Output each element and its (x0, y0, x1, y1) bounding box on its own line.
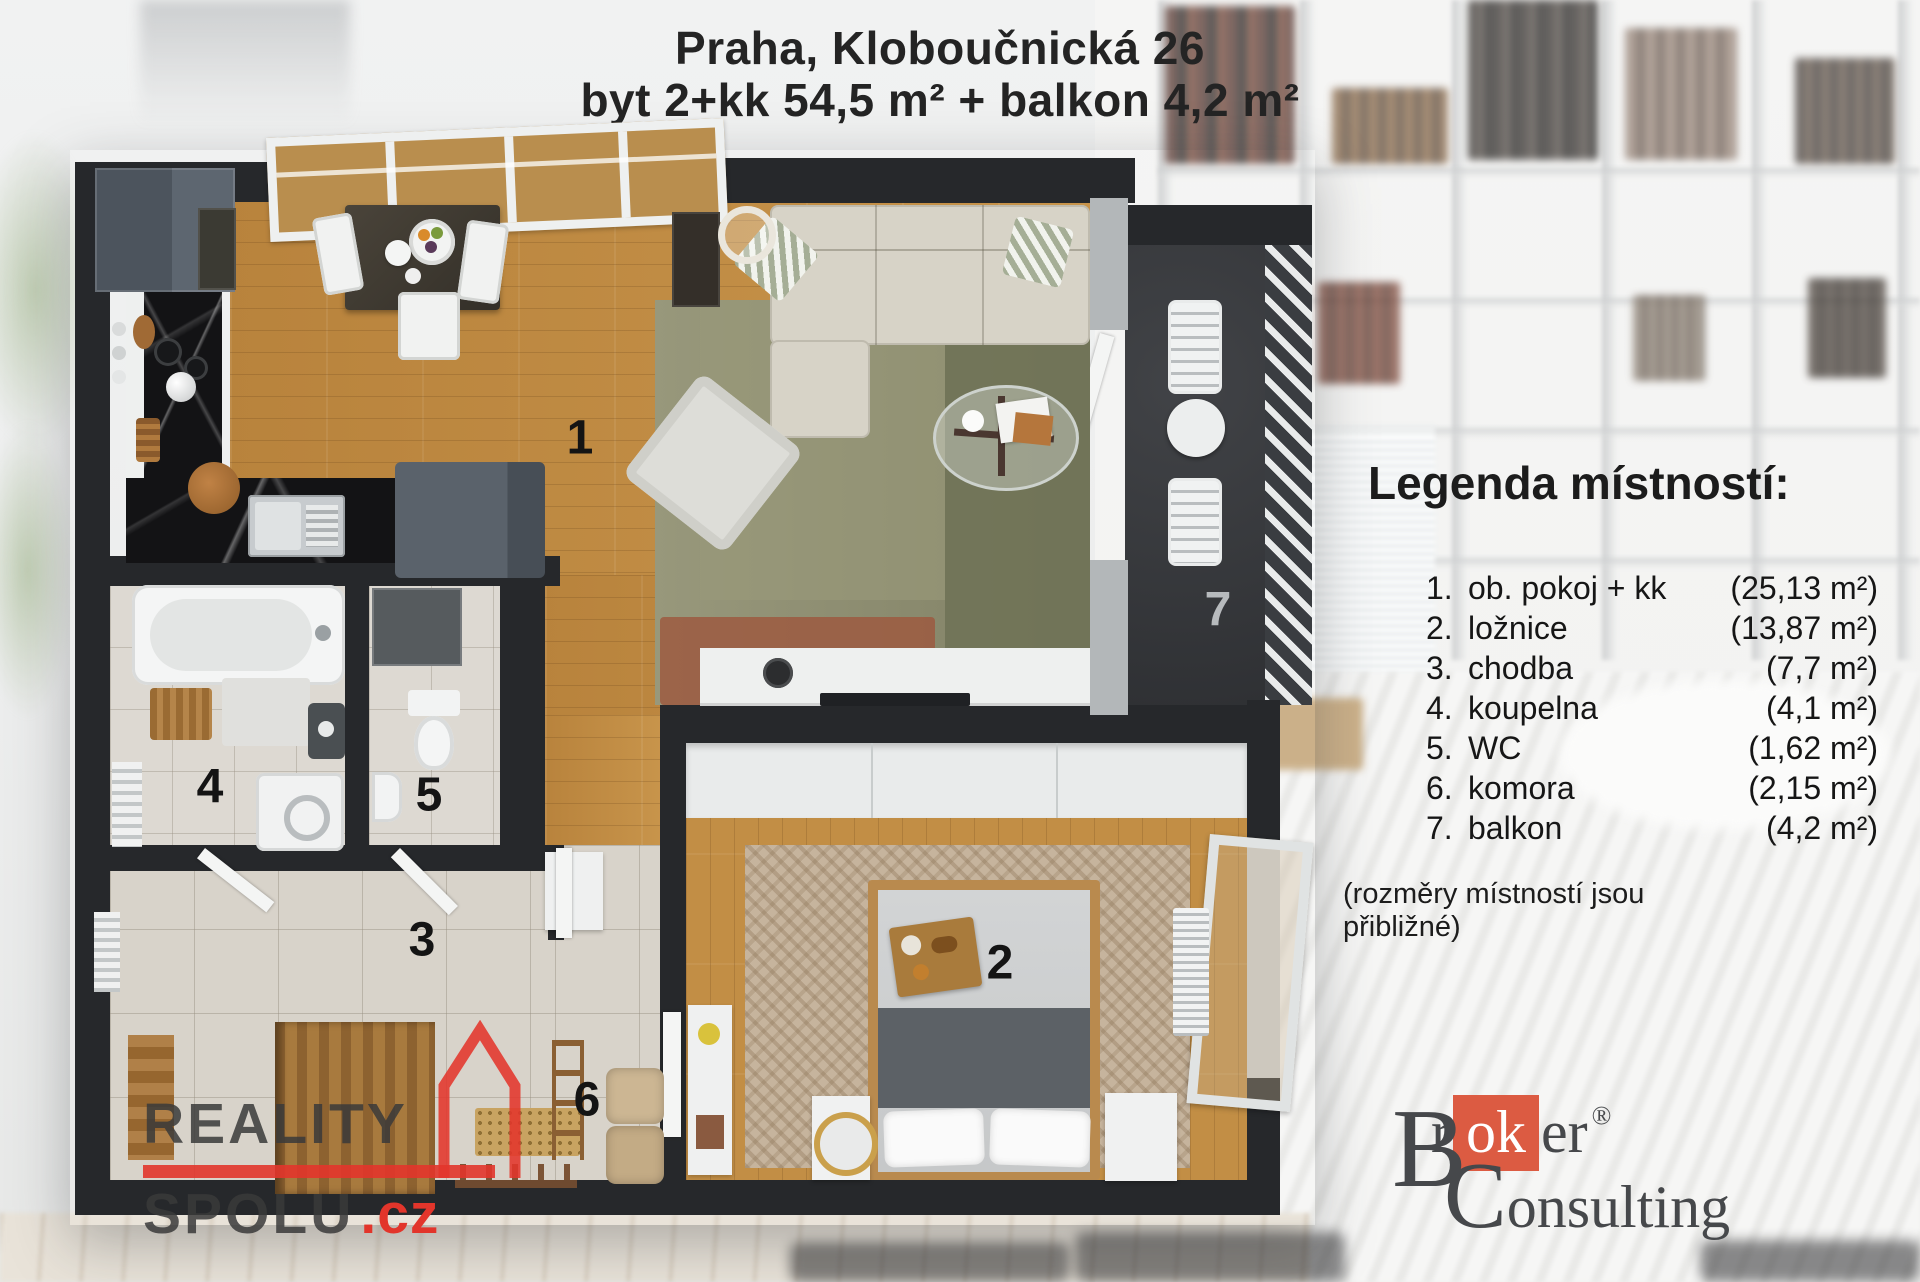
room-label-living: 1 (567, 411, 594, 466)
legend-num: 5. (1426, 728, 1468, 768)
magazine (1013, 412, 1054, 446)
breakfast-tray (889, 916, 983, 997)
legend-num: 2. (1426, 608, 1468, 648)
dining-chair (398, 292, 460, 360)
legend-list: 1.ob. pokoj + kk(25,13 m²) 2.ložnice(13,… (1426, 568, 1878, 848)
legend-num: 7. (1426, 808, 1468, 848)
title-line1: Praha, Kloboučnická 26 (0, 22, 1880, 74)
hall-radiator (94, 912, 120, 992)
bathtub-basin (150, 599, 312, 671)
registered-mark-icon: ® (1592, 1101, 1612, 1131)
dark-furniture-photo (790, 1242, 1070, 1282)
sofa-seam (875, 205, 877, 345)
sink-drainer (306, 505, 338, 547)
washbasin-dark (308, 703, 345, 759)
legend-row: 4.koupelna(4,1 m²) (1426, 688, 1878, 728)
kettle (166, 372, 196, 402)
console-books (696, 1115, 724, 1149)
tray-fruit (912, 963, 930, 981)
console-table (688, 1005, 732, 1175)
fruit (425, 241, 437, 253)
wall-living-balcony-lower (1090, 560, 1128, 715)
washer-door (284, 795, 330, 841)
legend-row: 7.balkon(4,2 m²) (1426, 808, 1878, 848)
room-label-hallway: 3 (409, 913, 436, 968)
side-shelf (672, 212, 720, 307)
storage-pouf (606, 1068, 664, 1124)
wardrobe-seam (871, 743, 873, 818)
legend-room-area: (2,15 m²) (1748, 768, 1878, 808)
wall-living-balcony-upper (1090, 198, 1128, 330)
plant-photo (0, 420, 75, 720)
broker-consulting-logo: B r ok er ® C onsulting (1398, 1095, 1868, 1242)
teapot (385, 240, 411, 266)
room-label-bedroom: 2 (987, 936, 1014, 991)
legend-note: (rozměry místností jsou přibližné) (1343, 878, 1763, 944)
toilet-tank (408, 690, 460, 716)
bath-faucet (315, 625, 331, 641)
legend-room-area: (4,1 m²) (1766, 688, 1878, 728)
bedroom-door-leaf (663, 1012, 681, 1137)
legend-num: 3. (1426, 648, 1468, 688)
legend-room-area: (4,2 m²) (1766, 808, 1878, 848)
window-mullion (504, 136, 517, 222)
broker-logo-er: er (1541, 1098, 1588, 1167)
balcony-chair (1168, 300, 1222, 394)
sofa-seam (982, 205, 984, 345)
storage-pouf (606, 1126, 664, 1184)
books-cluster (1633, 295, 1705, 381)
broker-logo-cap-b: B (1392, 1099, 1467, 1199)
legend-room-name: WC (1468, 730, 1521, 766)
legend-room-area: (7,7 m²) (1766, 648, 1878, 688)
wardrobe (686, 743, 1247, 818)
wall-left (75, 162, 110, 1215)
coffee-table (933, 385, 1079, 491)
floor-passage (545, 715, 660, 845)
broker-logo-onsulting: onsulting (1507, 1173, 1730, 1242)
bed-pillow (989, 1108, 1091, 1167)
teacup (962, 410, 984, 432)
legend-num: 4. (1426, 688, 1468, 728)
round-mirror (814, 1112, 878, 1176)
dark-furniture-photo (1700, 1240, 1920, 1282)
legend-room-name: balkon (1468, 810, 1562, 846)
legend-room-area: (25,13 m²) (1730, 568, 1878, 608)
balcony-table (1167, 399, 1225, 457)
sofa-chaise (770, 340, 870, 438)
reality-logo-house-icon (436, 1020, 522, 1184)
towel-radiator (112, 762, 142, 847)
kitchen-island (395, 462, 545, 578)
wall-wc-right (500, 575, 545, 847)
nightstand-right (1105, 1093, 1177, 1181)
kitchen-sink (248, 495, 345, 557)
jar (112, 346, 126, 360)
toilet-bowl (414, 716, 454, 770)
legend-room-name: ob. pokoj + kk (1468, 570, 1666, 606)
balcony-railing (1265, 245, 1312, 705)
floor-lamp (718, 206, 776, 264)
wc-corner-basin (372, 772, 402, 822)
books-cluster (1318, 282, 1400, 384)
fruit-bowl (409, 219, 455, 265)
jar (112, 370, 126, 384)
books-cluster (1808, 278, 1886, 378)
legend-num: 6. (1426, 768, 1468, 808)
floorplan-poster: Praha, Kloboučnická 26 byt 2+kk 54,5 m² … (0, 0, 1920, 1282)
legend-row: 6.komora(2,15 m²) (1426, 768, 1878, 808)
legend-row: 1.ob. pokoj + kk(25,13 m²) (1426, 568, 1878, 608)
bedroom-radiator (1173, 908, 1209, 1036)
fruit (418, 229, 430, 241)
legend-row: 5.WC(1,62 m²) (1426, 728, 1878, 768)
window-glare (276, 153, 716, 177)
fruit (431, 227, 443, 239)
reality-logo-tld: .cz (360, 1186, 439, 1243)
balcony-chair (1168, 478, 1222, 566)
spice-rack (136, 418, 160, 462)
room-label-storage: 6 (574, 1073, 601, 1128)
legend-room-name: komora (1468, 770, 1575, 806)
dark-furniture-photo (1075, 1232, 1345, 1282)
bath-wooden-stool (150, 688, 212, 740)
wall-living-bedroom (660, 705, 1255, 743)
tray-plate (900, 934, 923, 957)
wooden-board-small (133, 315, 155, 349)
legend-heading: Legenda místností: (1368, 456, 1790, 510)
legend-row: 2.ložnice(13,87 m²) (1426, 608, 1878, 648)
legend-room-area: (13,87 m²) (1730, 608, 1878, 648)
hall-white-table (545, 852, 603, 930)
cup (405, 268, 421, 284)
living-hall-door-leaf (556, 848, 572, 938)
washing-machine (256, 773, 344, 851)
rug-dark-band (945, 300, 1090, 705)
cutting-board-round (188, 462, 240, 514)
room-label-balcony: 7 (1205, 583, 1232, 638)
reality-logo-word2: SPOLU (143, 1186, 354, 1243)
tray-bread (930, 935, 958, 954)
legend-num: 1. (1426, 568, 1468, 608)
wall-bath-wc-divider (345, 585, 369, 847)
basin-bowl (318, 721, 334, 737)
kitchen-cabinet-open (198, 208, 236, 290)
legend-room-name: ložnice (1468, 610, 1568, 646)
title-line2: byt 2+kk 54,5 m² + balkon 4,2 m² (0, 74, 1880, 126)
decor-bowl (763, 658, 793, 688)
room-label-wc: 5 (416, 768, 443, 823)
bed-pillow (883, 1108, 985, 1167)
bath-mat (222, 678, 310, 746)
wardrobe-seam (1056, 743, 1058, 818)
wall-top-living (690, 158, 1135, 203)
legend-room-name: chodba (1468, 650, 1573, 686)
window-mullion (618, 131, 631, 217)
console-decor (698, 1023, 720, 1045)
bathtub (132, 585, 345, 685)
bed-blanket (878, 1008, 1090, 1108)
room-label-bathroom: 4 (197, 760, 224, 815)
legend-row: 3.chodba(7,7 m²) (1426, 648, 1878, 688)
legend-room-area: (1,62 m²) (1748, 728, 1878, 768)
tv (820, 693, 970, 706)
jar (112, 322, 126, 336)
legend-room-name: koupelna (1468, 690, 1598, 726)
wall-balcony-top (1125, 205, 1312, 245)
poster-title: Praha, Kloboučnická 26 byt 2+kk 54,5 m² … (0, 22, 1880, 126)
sink-basin (255, 502, 301, 550)
hob-burner (154, 338, 182, 366)
wall-bedroom-right-upper (1247, 700, 1280, 845)
wc-cistern-panel (372, 588, 462, 666)
